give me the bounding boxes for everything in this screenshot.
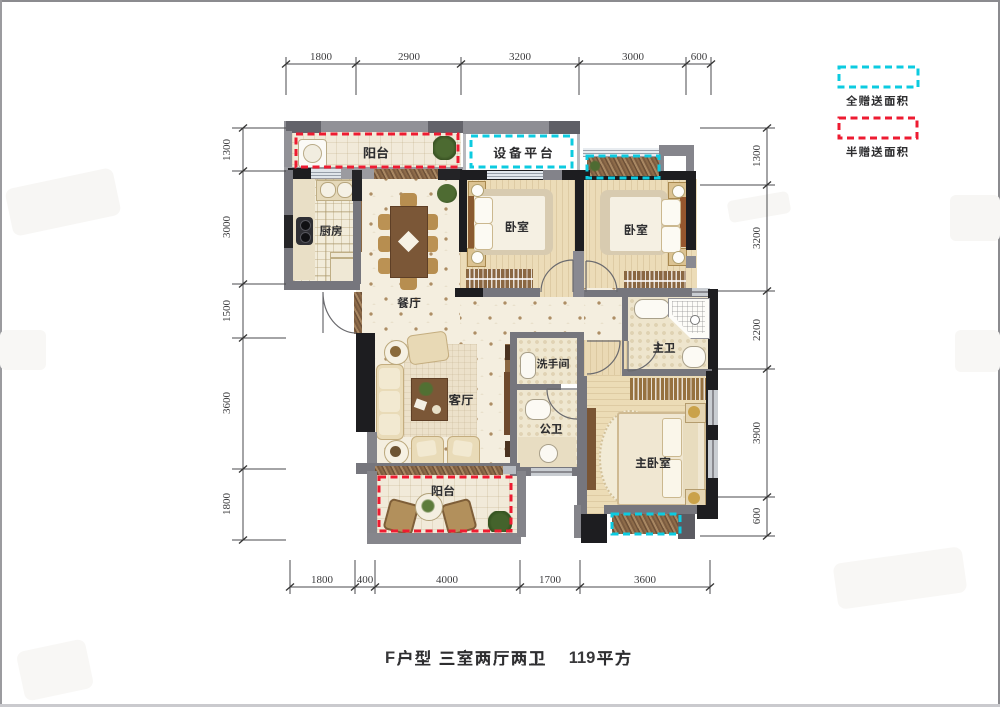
svg-text:2900: 2900 bbox=[398, 51, 421, 63]
svg-text:600: 600 bbox=[691, 51, 708, 63]
svg-text:1300: 1300 bbox=[221, 139, 233, 162]
svg-text:3600: 3600 bbox=[221, 392, 233, 415]
svg-text:119: 119 bbox=[569, 649, 596, 667]
svg-text:3200: 3200 bbox=[509, 51, 532, 63]
svg-text:1800: 1800 bbox=[310, 51, 333, 63]
svg-text:1800: 1800 bbox=[221, 493, 233, 516]
svg-text:4000: 4000 bbox=[436, 574, 459, 586]
svg-text:3600: 3600 bbox=[634, 574, 657, 586]
svg-text:3900: 3900 bbox=[751, 422, 763, 445]
svg-text:600: 600 bbox=[751, 507, 763, 524]
svg-text:3200: 3200 bbox=[751, 227, 763, 250]
svg-text:1800: 1800 bbox=[311, 574, 334, 586]
svg-text:3000: 3000 bbox=[622, 51, 645, 63]
svg-text:3000: 3000 bbox=[221, 216, 233, 239]
svg-text:2200: 2200 bbox=[751, 319, 763, 342]
svg-text:1500: 1500 bbox=[221, 300, 233, 323]
svg-text:400: 400 bbox=[357, 574, 374, 586]
svg-text:1300: 1300 bbox=[751, 145, 763, 168]
svg-text:F: F bbox=[385, 649, 395, 667]
svg-text:1700: 1700 bbox=[539, 574, 562, 586]
